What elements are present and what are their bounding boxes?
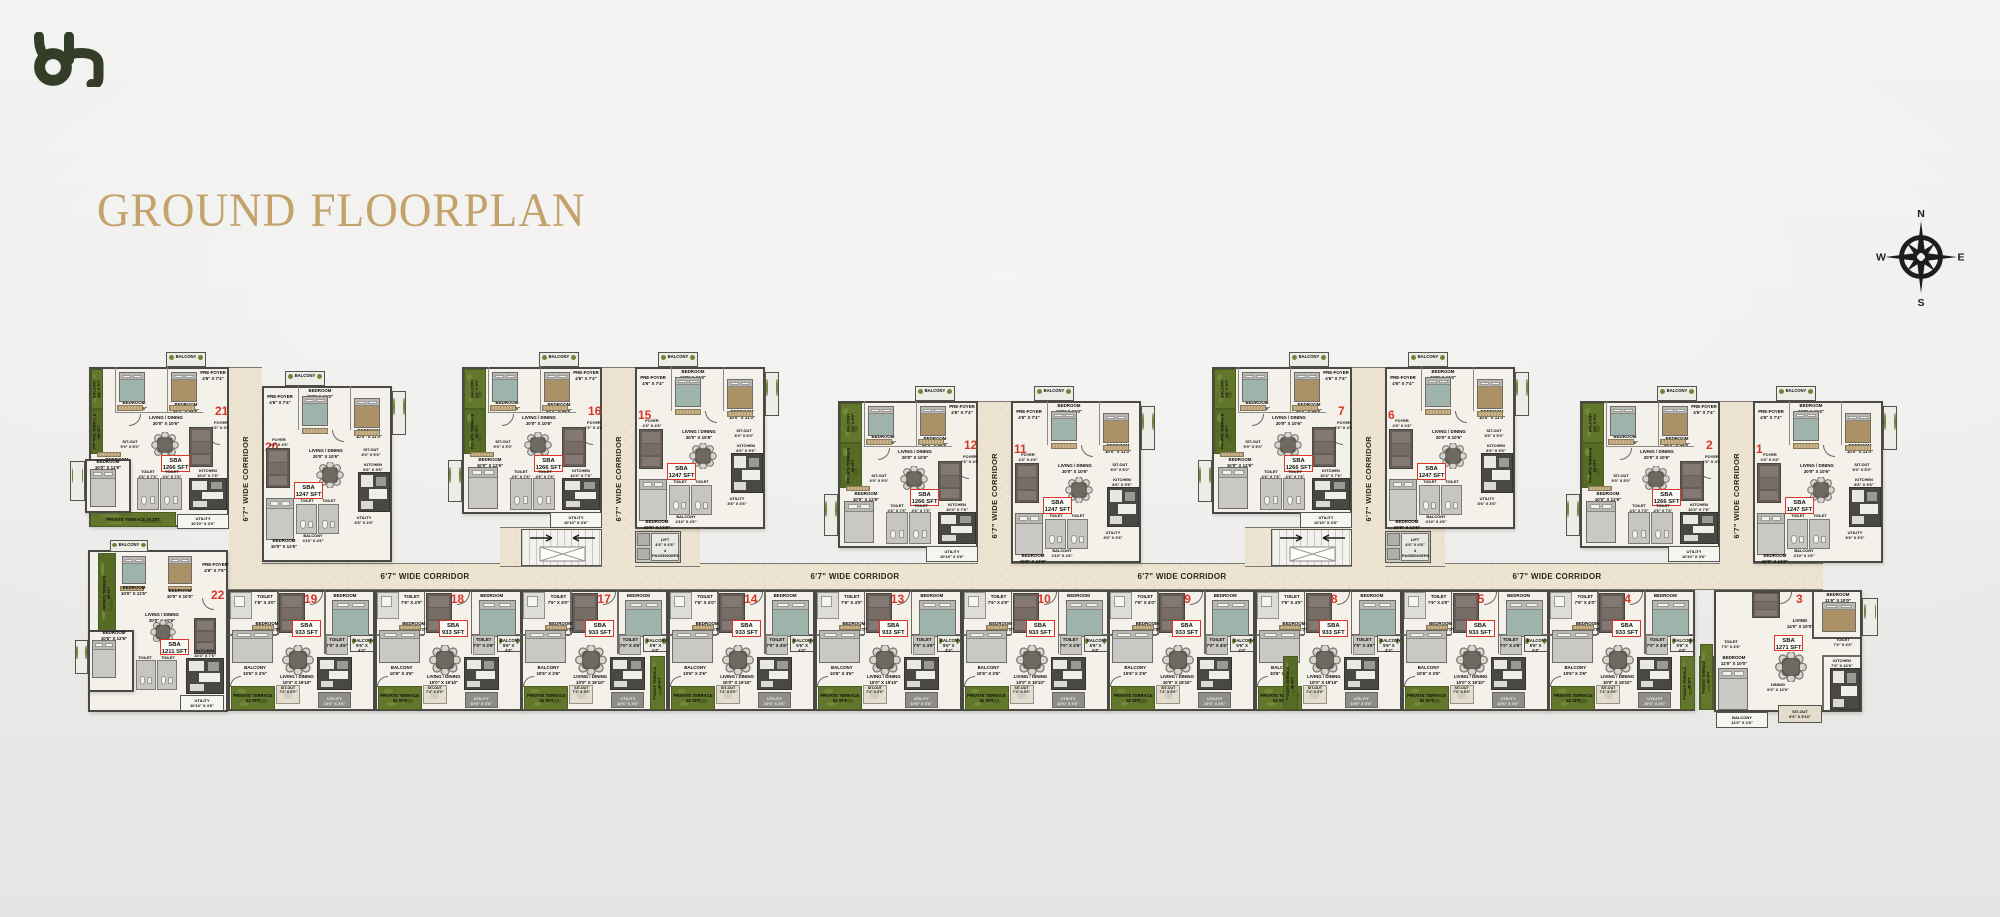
- svg-text:E: E: [1957, 252, 1964, 264]
- svg-text:W: W: [1876, 252, 1886, 264]
- svg-text:N: N: [1917, 208, 1925, 220]
- svg-text:S: S: [1917, 297, 1924, 307]
